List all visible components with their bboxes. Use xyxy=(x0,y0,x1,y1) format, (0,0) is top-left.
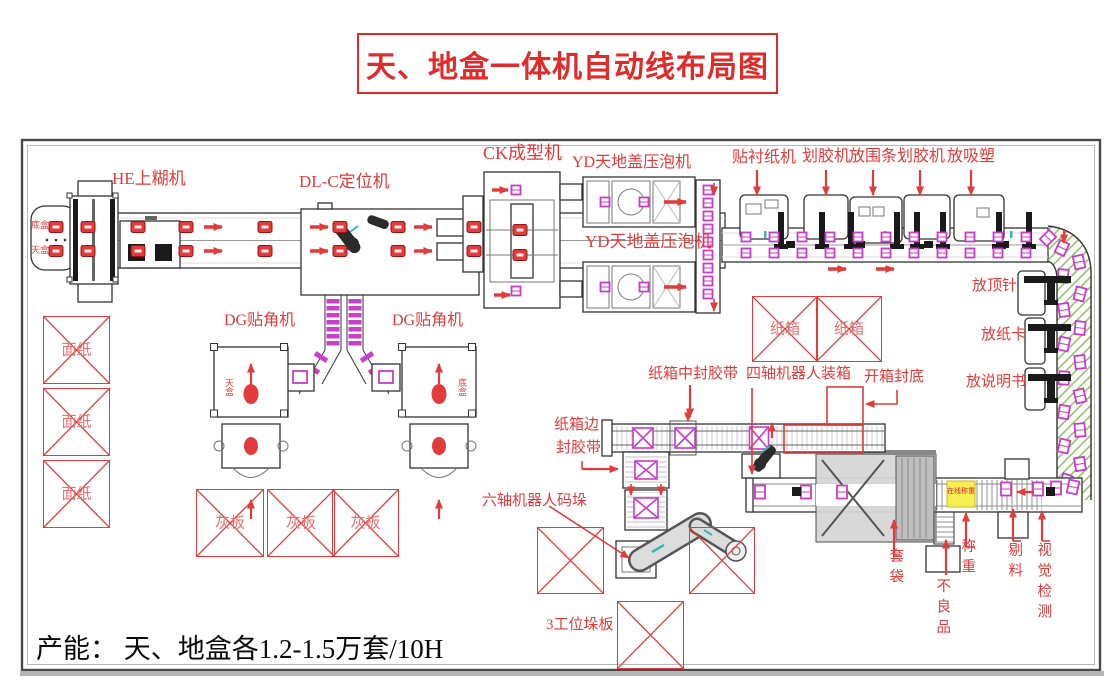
pallet-box xyxy=(537,527,604,594)
label-place-manual: 放说明书 xyxy=(966,375,1026,391)
label-dg-right-item: 底盒 xyxy=(456,378,469,396)
x-cross-icon xyxy=(618,602,683,668)
dlc-positioner-machine xyxy=(301,203,479,295)
label-edge-tape-line1: 纸箱边 xyxy=(554,418,599,434)
label-dg-right: DG贴角机 xyxy=(392,313,463,330)
label-mid-tape: 纸箱中封胶带 xyxy=(648,367,738,383)
label-four-axis-robot: 四轴机器人装箱 xyxy=(746,367,851,383)
material-box-carton: 纸箱 xyxy=(816,296,882,362)
label-inline-weigh: 在线称重 xyxy=(947,488,975,496)
material-box-gray-board: 灰板 xyxy=(332,489,399,557)
material-box-face-paper: 面纸 xyxy=(43,460,110,528)
material-label: 面纸 xyxy=(44,411,109,432)
label-place-card: 放纸卡 xyxy=(981,328,1026,344)
x-cross-icon xyxy=(690,528,754,593)
label-yd-press-top: YD天地盖压泡机 xyxy=(572,155,691,172)
label-reject: 剔料 xyxy=(1006,542,1021,583)
pallet-box xyxy=(689,527,755,594)
label-yd-press-bottom: YD天地盖压泡机 xyxy=(585,233,712,251)
diagram-title: 天、地盒一体机自动线布局图 xyxy=(366,42,769,86)
label-glue-scorer-2: 划胶机 xyxy=(897,149,945,166)
material-label: 纸箱 xyxy=(753,318,817,339)
label-open-seal: 开箱封底 xyxy=(864,370,924,386)
label-dg-left: DG贴角机 xyxy=(224,313,295,330)
yd-press-top xyxy=(583,177,695,227)
material-label: 纸箱 xyxy=(817,318,881,339)
label-ck-former: CK成型机 xyxy=(483,144,562,163)
label-he-gluer: HE上糊机 xyxy=(112,170,186,188)
label-place-rim: 放围条 xyxy=(849,149,897,166)
label-weighing: 称重 xyxy=(959,538,974,579)
label-vision-inspect: 视觉检测 xyxy=(1035,542,1050,624)
x-cross-icon xyxy=(538,528,603,593)
material-box-face-paper: 面纸 xyxy=(43,316,110,384)
bagging-machine xyxy=(816,450,936,542)
material-label: 面纸 xyxy=(44,483,109,504)
material-box-gray-board: 灰板 xyxy=(267,489,335,557)
label-dlc-positioner: DL-C定位机 xyxy=(299,173,390,191)
material-label: 灰板 xyxy=(197,512,263,533)
material-box-gray-board: 灰板 xyxy=(196,489,264,557)
label-bagging: 套袋 xyxy=(887,548,902,589)
material-label: 灰板 xyxy=(268,512,334,533)
material-box-face-paper: 面纸 xyxy=(43,388,110,456)
material-box-carton: 纸箱 xyxy=(752,296,818,362)
label-defective: 不良品 xyxy=(934,578,949,640)
label-place-blister: 放吸塑 xyxy=(947,149,995,166)
label-glue-scorer-1: 划胶机 xyxy=(802,149,850,166)
label-place-pin: 放顶针 xyxy=(972,279,1017,295)
label-pallet-station: 3工位垛板 xyxy=(546,618,614,634)
capacity-note: 产能： 天、地盒各1.2-1.5万套/10H xyxy=(36,627,443,666)
label-lining-paper: 贴衬纸机 xyxy=(732,150,796,167)
material-label: 灰板 xyxy=(333,512,398,533)
label-bottom-box-lane: 底盒 xyxy=(31,221,49,230)
label-edge-tape-line2: 封胶带 xyxy=(556,441,601,457)
yd-press-bottom xyxy=(583,262,695,312)
label-six-axis-robot: 六轴机器人码垛 xyxy=(482,494,587,510)
label-top-box-lane: 天盒 xyxy=(31,246,49,255)
diagram-title-box: 天、地盒一体机自动线布局图 xyxy=(357,33,778,94)
pallet-box xyxy=(617,601,684,669)
material-label: 面纸 xyxy=(44,339,109,360)
label-dg-left-item: 天盒 xyxy=(223,378,236,396)
layout-canvas: 天、地盒一体机自动线布局图 xyxy=(0,0,1120,691)
